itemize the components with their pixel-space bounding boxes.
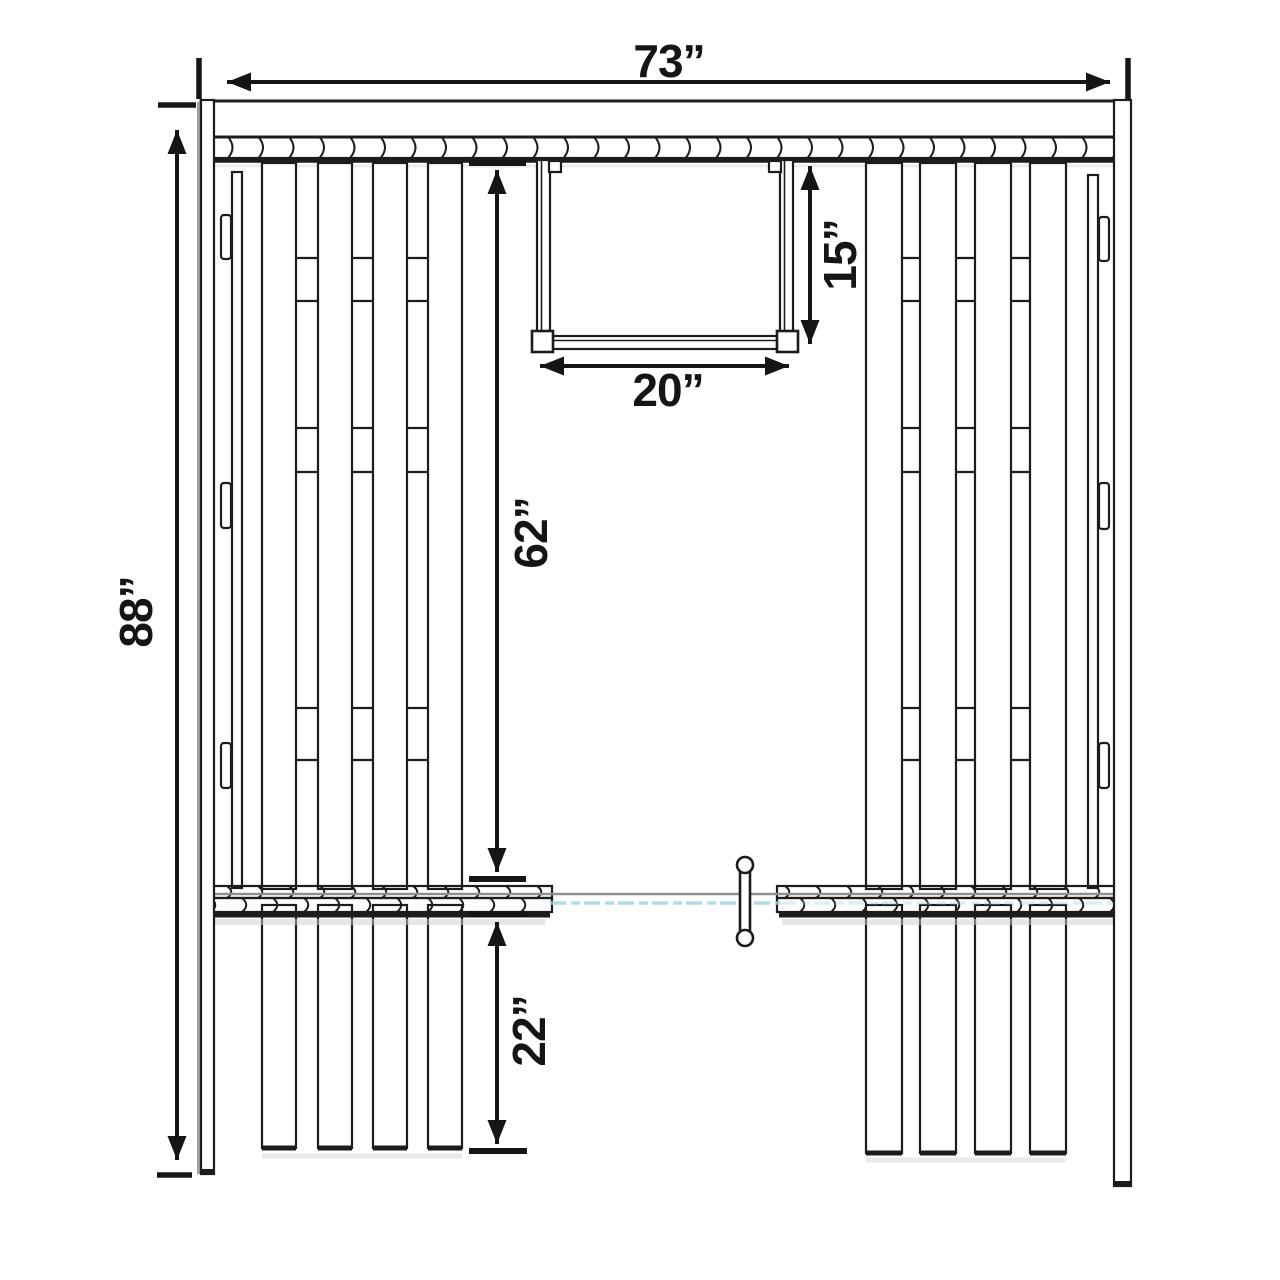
top-beam [201,101,1130,137]
door-handle-bottom-knob [737,930,753,946]
dimension-label-88: 88” [110,576,162,647]
left-frame-post [201,100,214,1174]
wall-slat [975,163,1011,889]
hinge-tab [221,215,231,259]
mid-rail-left-upper-board [205,886,552,898]
dimension-window-height: 15” [810,166,866,344]
door-jamb-strip [1088,175,1098,888]
window-sill [553,336,777,349]
dimension-label-62: 62” [505,497,557,568]
hinge-tab [1099,217,1109,261]
door-handle-top-knob [737,857,753,873]
dimension-label-22: 22” [503,995,555,1066]
slat-joint-lines [296,258,428,760]
wall-slat [373,905,407,1148]
wall-slat [975,905,1011,1153]
dimension-overall-height: 88” [110,105,196,1175]
wall-slat [262,163,296,889]
wall-slat [920,163,956,889]
wall-slat [866,905,902,1153]
hinge-tab [1099,743,1109,788]
dimension-label-15: 15” [814,219,866,290]
window-top-bracket-right [769,161,781,172]
lower-left-slat-panel [262,905,462,1156]
wall-slat [262,905,296,1148]
dimension-window-width: 20” [540,364,789,416]
upper-right-slat-panel [866,163,1109,889]
hinge-tab [221,743,231,788]
window-top-bracket-left [549,161,561,172]
wall-slat [373,163,407,889]
dimension-label-73: 73” [633,35,704,87]
mid-rail-right-lower-board [777,898,1122,912]
wall-slat [1030,163,1066,889]
lower-right-slat-panel [866,905,1066,1160]
top-scalloped-rail [207,137,1122,158]
door-window-frame [532,160,798,352]
wall-slat [1030,905,1066,1153]
wall-slat [866,163,902,889]
wall-slat [428,163,462,889]
hinge-tab [1099,483,1109,529]
upper-left-slat-panel [221,163,462,889]
window-foot-left [532,331,553,352]
right-frame-post [1114,100,1131,1186]
dimension-lower-section: 22” [469,914,555,1151]
wall-slat [920,905,956,1153]
door-handle [737,857,753,946]
door-handle-bar [740,872,750,934]
window-right-post [780,160,793,333]
dimension-label-20: 20” [632,364,703,416]
wall-slat [318,163,352,889]
door-jamb-strip [232,172,242,888]
hinge-tab [221,483,231,528]
window-left-post [537,160,550,333]
mid-rail-right-upper-board [777,886,1122,898]
wall-slat [318,905,352,1148]
sauna-dimension-diagram: 73” 88” 62” 22” 15” 20” [0,0,1280,1280]
wall-slat [428,905,462,1148]
window-foot-right [777,331,798,352]
dimension-overall-width: 73” [199,35,1128,99]
diagram-canvas: 73” 88” 62” 22” 15” 20” [0,0,1280,1280]
mid-rail-left-lower-board [208,898,552,912]
top-beam-assembly [201,101,1130,166]
